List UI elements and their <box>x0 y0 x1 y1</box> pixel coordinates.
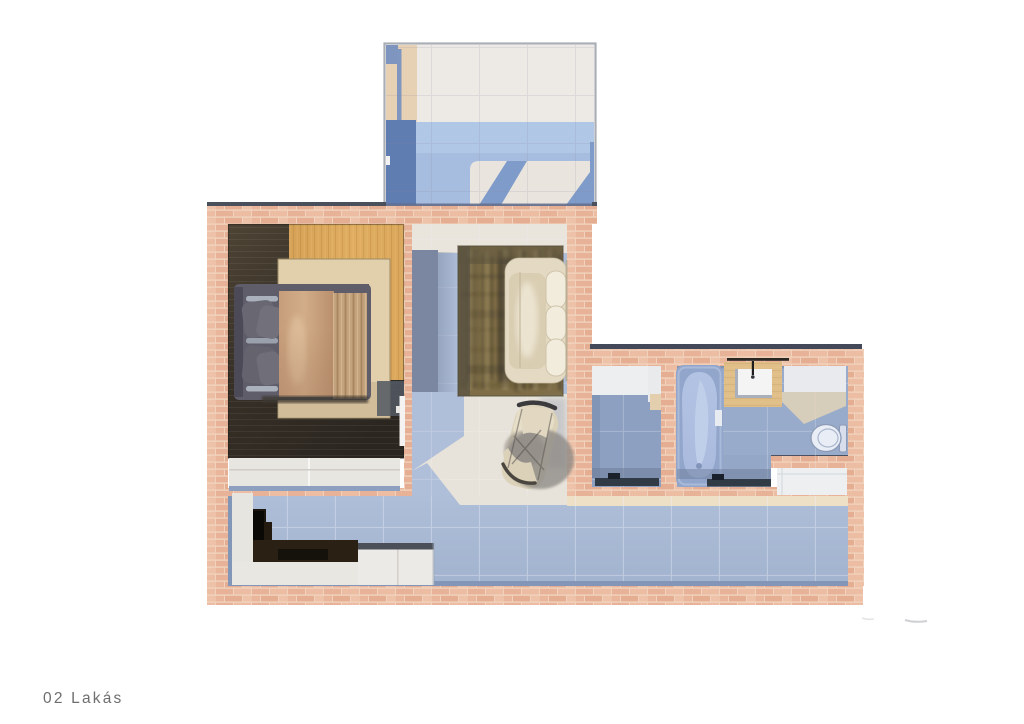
svg-text:02 Lakás: 02 Lakás <box>43 690 124 707</box>
